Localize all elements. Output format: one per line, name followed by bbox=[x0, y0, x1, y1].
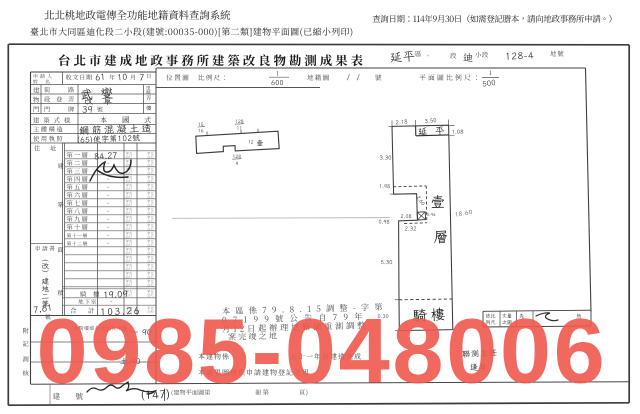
svg-text:0985-048006: 0985-048006 bbox=[37, 300, 608, 402]
